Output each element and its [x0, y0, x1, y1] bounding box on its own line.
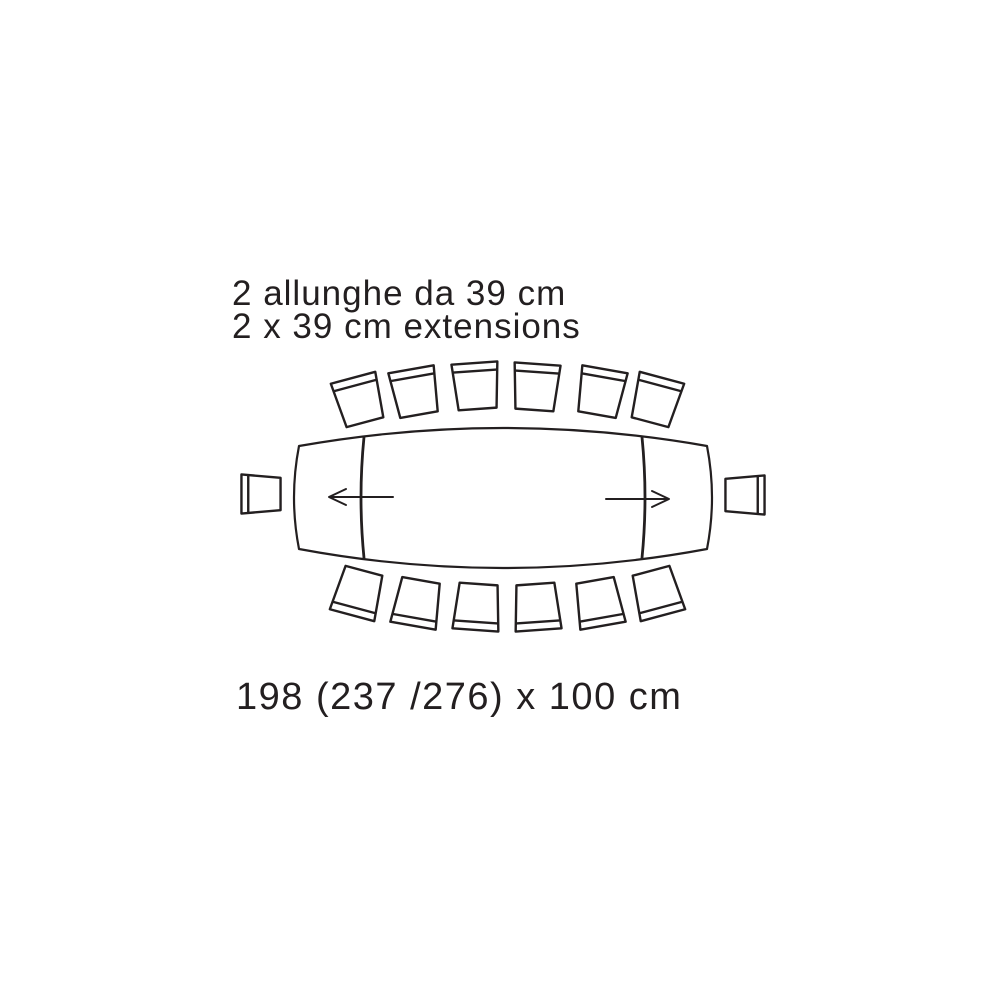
chair-right-end-icon — [725, 475, 764, 514]
chair-left-end-icon — [241, 474, 280, 513]
spec-sheet: 2 allunghe da 39 cm 2 x 39 cm extensions — [0, 0, 1000, 1000]
dimensions-label: 198 (237 /276) x 100 cm — [236, 676, 682, 719]
chair-top-6-icon — [628, 372, 684, 428]
chair-top-2-icon — [388, 365, 441, 418]
chair-bottom-2-icon — [390, 576, 443, 629]
chair-top-3-icon — [451, 361, 500, 410]
chair-top-1-icon — [331, 372, 387, 428]
chair-bottom-6-icon — [629, 565, 685, 621]
chair-bottom-3-icon — [452, 582, 501, 631]
chair-bottom-5-icon — [572, 576, 625, 629]
chair-top-4-icon — [511, 362, 560, 411]
chair-top-5-icon — [574, 365, 627, 418]
chair-bottom-1-icon — [330, 565, 386, 621]
chair-bottom-4-icon — [512, 582, 561, 631]
table-plan-diagram — [0, 0, 1000, 1000]
